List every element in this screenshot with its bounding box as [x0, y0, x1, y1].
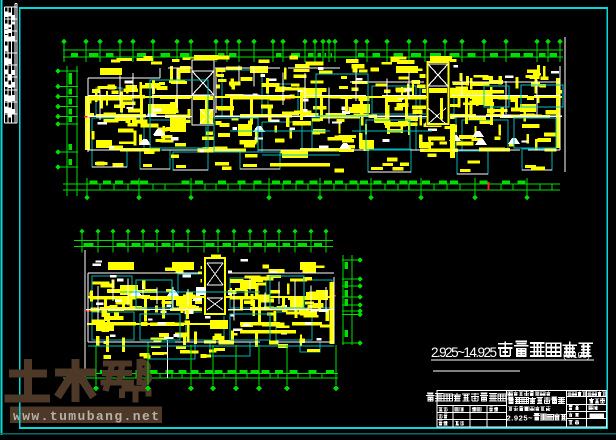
svg-text:(1:100): (1:100) [563, 350, 590, 360]
svg-text:www.tumubang.net: www.tumubang.net [13, 409, 159, 424]
svg-text:2.925~14.925: 2.925~14.925 [431, 345, 497, 360]
svg-text:2.925~: 2.925~ [507, 414, 534, 423]
